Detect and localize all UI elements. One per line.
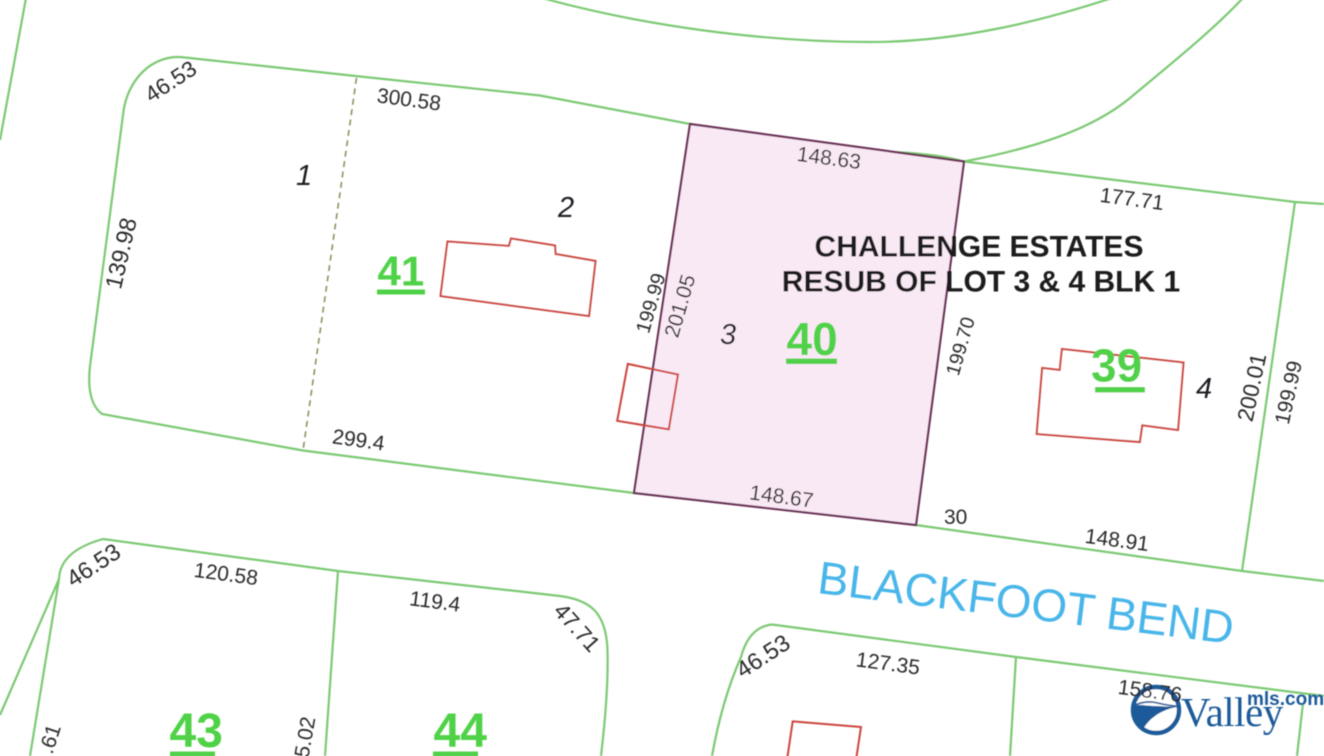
svg-text:30: 30	[944, 506, 967, 529]
svg-text:4: 4	[1196, 373, 1212, 405]
svg-text:2: 2	[557, 192, 574, 224]
svg-text:mls.com: mls.com	[1247, 689, 1324, 710]
svg-text:39: 39	[1091, 340, 1142, 392]
svg-text:RESUB OF LOT 3 & 4 BLK 1: RESUB OF LOT 3 & 4 BLK 1	[782, 266, 1180, 299]
svg-text:3: 3	[720, 319, 736, 351]
svg-text:44: 44	[434, 705, 488, 756]
svg-text:43: 43	[170, 705, 223, 756]
svg-text:1: 1	[296, 160, 312, 192]
svg-text:40: 40	[787, 313, 838, 365]
svg-text:CHALLENGE ESTATES: CHALLENGE ESTATES	[815, 231, 1144, 264]
svg-text:41: 41	[378, 248, 425, 295]
